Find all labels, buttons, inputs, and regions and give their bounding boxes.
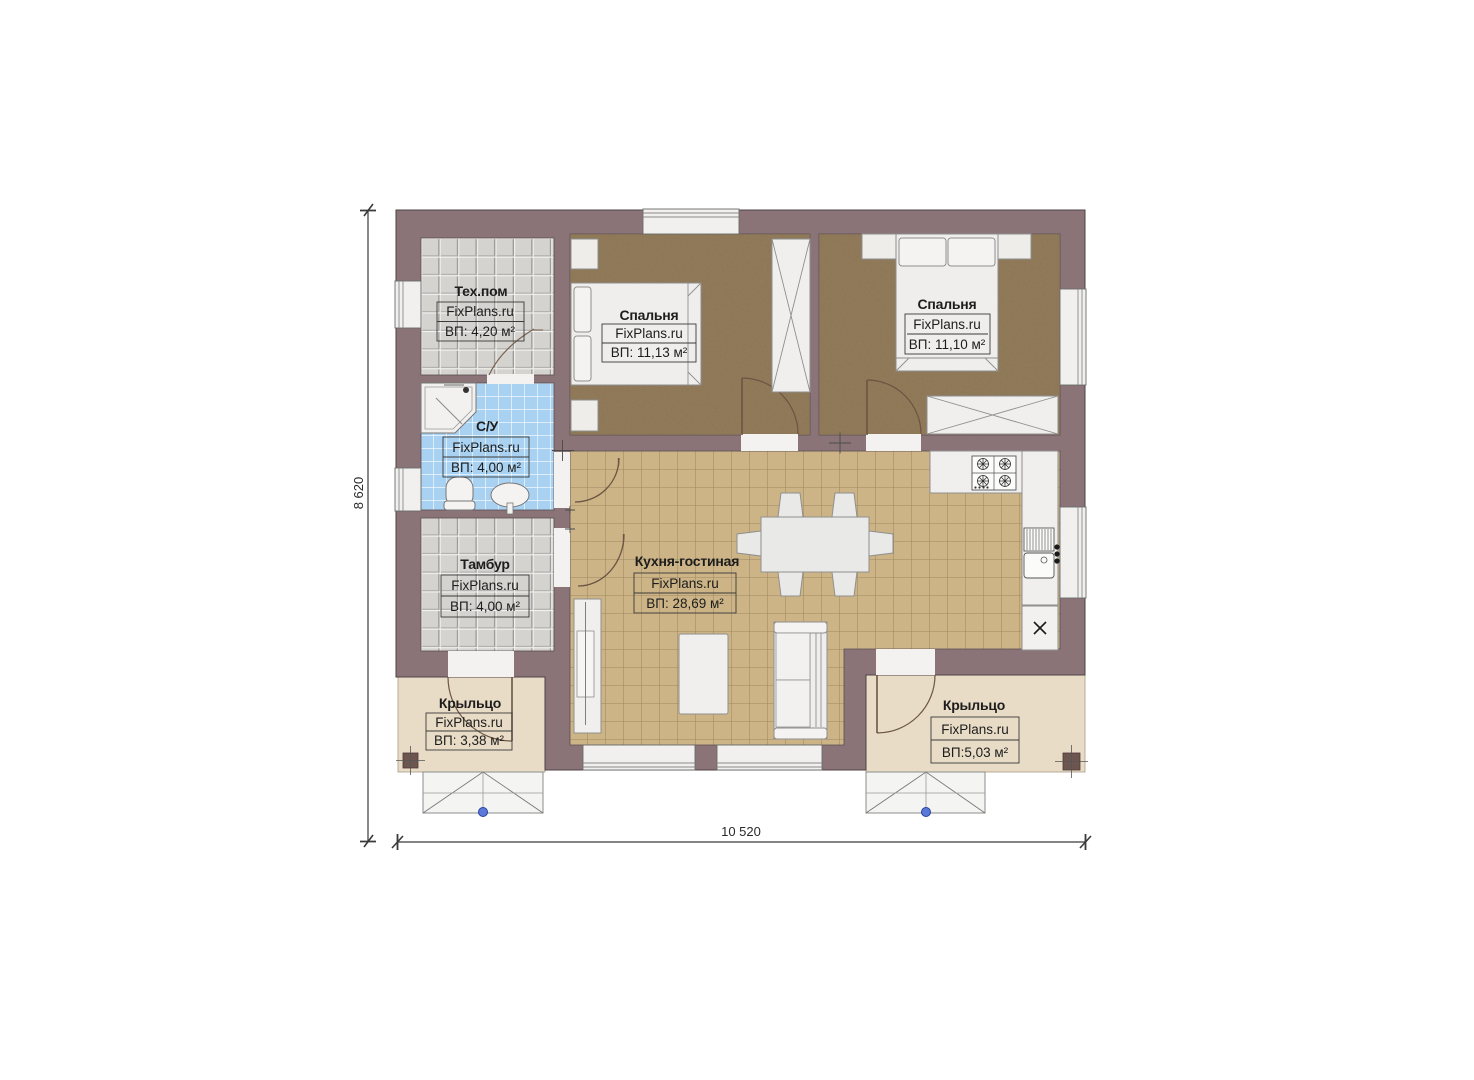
svg-text:8 620: 8 620	[351, 477, 366, 510]
svg-text:FixPlans.ru: FixPlans.ru	[435, 715, 503, 730]
svg-text:С/У: С/У	[476, 418, 499, 434]
svg-text:FixPlans.ru: FixPlans.ru	[615, 326, 683, 341]
svg-text:ВП:5,03 м²: ВП:5,03 м²	[942, 745, 1009, 760]
svg-text:10 520: 10 520	[721, 824, 761, 839]
svg-text:Кухня-гостиная: Кухня-гостиная	[635, 553, 739, 569]
svg-text:FixPlans.ru: FixPlans.ru	[446, 304, 514, 319]
svg-text:ВП: 3,38 м²: ВП: 3,38 м²	[434, 733, 505, 748]
svg-text:Крыльцо: Крыльцо	[943, 697, 1005, 713]
svg-text:ВП: 4,00 м²: ВП: 4,00 м²	[450, 599, 521, 614]
svg-text:Крыльцо: Крыльцо	[439, 695, 501, 711]
svg-text:ВП: 28,69 м²: ВП: 28,69 м²	[646, 596, 724, 611]
svg-text:ВП: 11,13 м²: ВП: 11,13 м²	[611, 345, 688, 360]
svg-text:FixPlans.ru: FixPlans.ru	[452, 440, 520, 455]
svg-text:FixPlans.ru: FixPlans.ru	[941, 722, 1009, 737]
svg-text:FixPlans.ru: FixPlans.ru	[913, 317, 981, 332]
svg-text:ВП: 4,00 м²: ВП: 4,00 м²	[451, 460, 522, 475]
svg-text:Тамбур: Тамбур	[460, 556, 510, 572]
svg-text:Спальня: Спальня	[619, 307, 678, 323]
svg-text:Спальня: Спальня	[917, 296, 976, 312]
svg-text:FixPlans.ru: FixPlans.ru	[651, 576, 719, 591]
svg-text:ВП: 4,20 м²: ВП: 4,20 м²	[445, 324, 516, 339]
svg-text:Тех.пом: Тех.пом	[455, 283, 508, 299]
svg-text:FixPlans.ru: FixPlans.ru	[451, 578, 519, 593]
svg-text:ВП: 11,10 м²: ВП: 11,10 м²	[909, 337, 986, 352]
